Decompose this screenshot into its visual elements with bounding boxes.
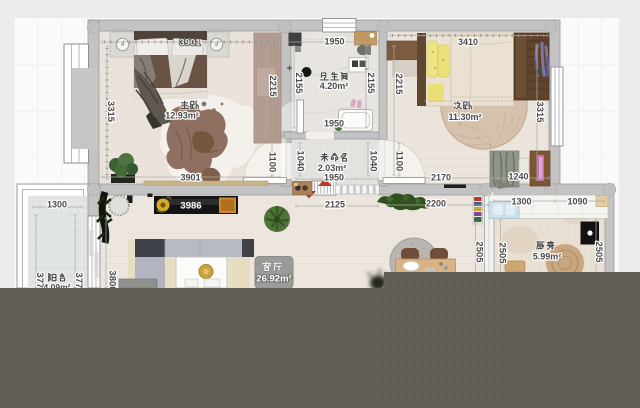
svg-text:1300: 1300 bbox=[511, 197, 531, 207]
svg-text:2170: 2170 bbox=[431, 173, 451, 183]
svg-text:2155: 2155 bbox=[293, 72, 304, 94]
svg-text:2.03m²: 2.03m² bbox=[318, 163, 347, 173]
svg-text:11.30m²: 11.30m² bbox=[448, 112, 481, 122]
svg-text:1040: 1040 bbox=[368, 150, 379, 171]
svg-text:1950: 1950 bbox=[324, 119, 344, 129]
svg-text:5.99m²: 5.99m² bbox=[533, 252, 562, 262]
svg-text:2200: 2200 bbox=[426, 199, 446, 209]
svg-text:2505: 2505 bbox=[593, 241, 604, 263]
svg-text:12.93m²: 12.93m² bbox=[165, 111, 199, 121]
svg-text:1040: 1040 bbox=[295, 150, 306, 171]
svg-text:2215: 2215 bbox=[267, 75, 278, 97]
svg-text:2505: 2505 bbox=[497, 242, 508, 264]
svg-text:1100: 1100 bbox=[267, 152, 278, 173]
svg-text:1100: 1100 bbox=[394, 151, 405, 172]
svg-text:1090: 1090 bbox=[567, 197, 587, 207]
svg-text:2505: 2505 bbox=[474, 241, 485, 263]
svg-text:1300: 1300 bbox=[47, 200, 67, 210]
svg-text:3901: 3901 bbox=[179, 38, 201, 49]
svg-text:2215: 2215 bbox=[393, 73, 404, 95]
svg-text:3315: 3315 bbox=[105, 101, 116, 123]
svg-text:1950: 1950 bbox=[324, 37, 344, 47]
svg-text:1240: 1240 bbox=[508, 172, 528, 182]
svg-text:1950: 1950 bbox=[324, 173, 344, 183]
svg-text:3901: 3901 bbox=[180, 173, 200, 183]
svg-text:4.20m²: 4.20m² bbox=[320, 81, 349, 91]
svg-text:3986: 3986 bbox=[180, 201, 201, 212]
svg-text:3410: 3410 bbox=[458, 37, 478, 47]
svg-text:3315: 3315 bbox=[534, 101, 545, 123]
svg-text:26.92m²: 26.92m² bbox=[256, 274, 291, 285]
svg-text:2125: 2125 bbox=[325, 200, 345, 210]
svg-text:2155: 2155 bbox=[365, 72, 376, 94]
